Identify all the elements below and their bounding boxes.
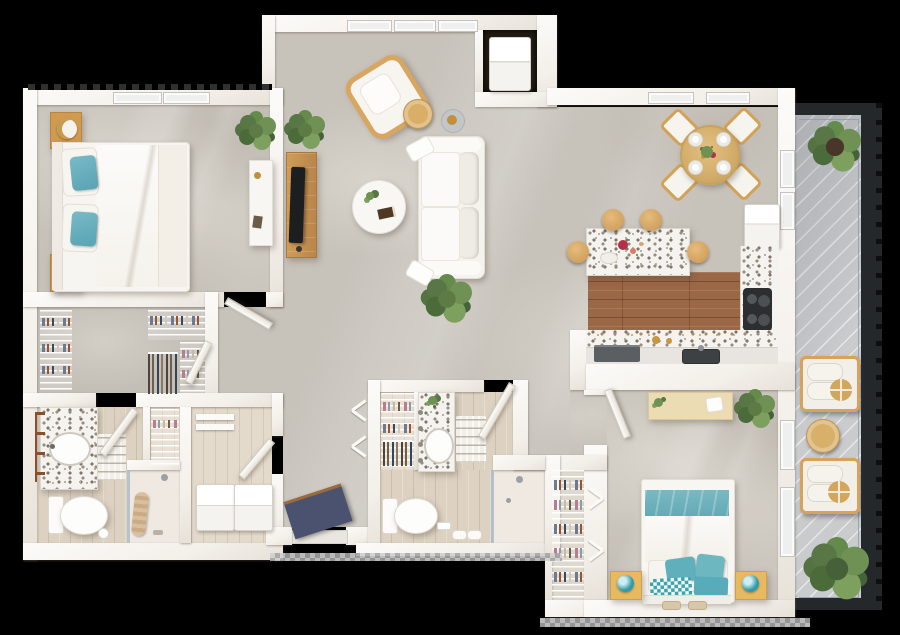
window: [780, 420, 795, 470]
lamp-teal: [617, 575, 634, 592]
balcony-plant: [826, 138, 844, 156]
wall: [136, 393, 283, 407]
coffee-table-plant: [366, 192, 374, 200]
wall: [23, 88, 37, 560]
window: [438, 20, 478, 32]
laundry-shelf: [196, 414, 234, 420]
shower-head: [516, 476, 523, 483]
island-flowers: [618, 240, 628, 250]
sofa-back-cushion: [458, 152, 479, 205]
place-setting: [688, 132, 703, 147]
toilet-paper: [98, 528, 109, 539]
laptop: [705, 396, 724, 413]
window: [648, 92, 694, 104]
desk-accessory: [252, 215, 263, 228]
folded-clothes: [383, 402, 412, 411]
towel-ladder: [35, 412, 45, 482]
kitchen-sink: [682, 349, 720, 364]
balcony-railing-posts: [876, 103, 882, 610]
bed-throw: [694, 576, 729, 596]
render-artifact-edge: [28, 84, 272, 90]
rolled-towel: [452, 530, 467, 540]
counter-jar: [666, 338, 672, 344]
faucet-knob: [418, 410, 423, 415]
plant: [298, 123, 312, 137]
sofa-seat-cushion: [421, 207, 460, 261]
dryer: [234, 484, 273, 531]
bifold-door: [586, 536, 604, 564]
wall: [475, 92, 557, 107]
corridor-floor: [570, 390, 584, 455]
wall: [180, 407, 191, 543]
folded-clothes: [554, 572, 582, 582]
shower-knob: [506, 498, 511, 503]
kitchen-faucet: [698, 345, 704, 351]
folded-clothes: [554, 500, 582, 510]
vanity-plant: [428, 396, 437, 405]
round-pillow: [830, 379, 852, 401]
window: [163, 92, 210, 104]
toilet-bowl: [394, 498, 438, 534]
counter-jar: [652, 336, 660, 344]
shower-glass: [491, 470, 494, 543]
window: [394, 20, 436, 32]
faucet-knob: [418, 442, 423, 447]
sofa-back-cushion: [458, 207, 479, 259]
desk-plant: [654, 398, 663, 407]
faucet-knob: [418, 458, 423, 463]
place-setting: [716, 160, 731, 175]
desk: [249, 160, 273, 246]
water-heater: [489, 37, 531, 91]
render-artifact-edge: [540, 618, 810, 627]
sofa-seat-cushion: [421, 152, 460, 207]
hanging-clothes: [148, 352, 178, 394]
place-setting: [688, 160, 703, 175]
pillow-teal: [69, 155, 98, 192]
lamp-teal: [742, 575, 759, 592]
window: [706, 92, 750, 104]
headboard: [643, 595, 731, 604]
kitchen-floor: [588, 272, 740, 332]
folded-clothes: [42, 344, 70, 352]
wall: [23, 393, 96, 407]
plant: [748, 402, 762, 416]
plant: [438, 290, 456, 308]
desk-accessory: [254, 172, 261, 179]
window: [780, 487, 795, 557]
centerpiece: [701, 146, 713, 158]
blanket: [158, 145, 187, 287]
closet-shelves: [148, 310, 205, 340]
candle: [447, 115, 457, 125]
wall: [266, 292, 283, 307]
soap-dish: [437, 522, 451, 530]
hanging-clothes: [383, 440, 412, 466]
bar-stool: [602, 209, 624, 231]
console-bowl: [296, 246, 302, 252]
wall: [262, 15, 275, 95]
bath-mat: [456, 416, 486, 462]
bed-teal-blanket: [645, 490, 729, 516]
bifold-door: [586, 484, 604, 512]
wall: [272, 393, 283, 436]
balcony-railing-bottom: [795, 598, 882, 610]
wall: [586, 363, 795, 390]
round-pillow: [828, 481, 850, 503]
side-table: [403, 99, 433, 129]
bar-stool: [640, 209, 662, 231]
kitchen-island: [586, 228, 690, 276]
wall: [475, 30, 483, 92]
dishwasher: [594, 345, 640, 362]
folded-clothes: [383, 424, 412, 433]
cooktop: [743, 288, 772, 331]
faucet-knob: [418, 426, 423, 431]
folded-clothes: [42, 318, 70, 326]
shower-drain: [153, 530, 163, 535]
window: [347, 20, 392, 32]
folded-clothes: [150, 316, 200, 325]
wall: [493, 455, 545, 470]
tv: [289, 167, 306, 243]
outdoor-chair: [800, 356, 860, 412]
wall: [143, 407, 150, 467]
linens: [153, 420, 177, 428]
slipper: [662, 601, 681, 610]
shower-glass: [127, 470, 130, 543]
wall: [368, 380, 380, 556]
wall: [368, 380, 484, 392]
faucet: [50, 444, 55, 449]
refrigerator: [744, 204, 780, 248]
pillow-teal: [70, 211, 98, 247]
wall: [23, 543, 283, 560]
folded-clothes: [42, 366, 70, 374]
wall: [570, 330, 586, 390]
folded-clothes: [554, 480, 582, 490]
lamp: [57, 119, 77, 139]
outdoor-table: [806, 419, 840, 453]
plant: [249, 124, 263, 138]
folded-clothes: [554, 524, 582, 534]
bifold-door: [351, 432, 369, 460]
bar-stool: [687, 241, 709, 263]
vanity-sink: [424, 428, 454, 464]
bifold-door: [351, 396, 369, 424]
render-artifact-edge: [270, 553, 562, 561]
washer: [196, 484, 235, 531]
slipper: [688, 601, 707, 610]
bedroom-2-door-floor: [584, 395, 607, 445]
window: [780, 150, 795, 188]
place-setting: [716, 132, 731, 147]
floor-plan: [0, 0, 900, 635]
linen-shelves: [151, 409, 179, 466]
shower-head: [161, 474, 168, 481]
island-plate: [600, 252, 618, 264]
outdoor-chair: [800, 458, 860, 514]
laundry-shelf: [196, 424, 234, 430]
window: [780, 192, 795, 230]
vanity-sink: [49, 432, 91, 466]
rolled-towel: [467, 530, 482, 540]
coffee-table: [352, 180, 406, 234]
chair-cushion: [357, 71, 404, 118]
bar-stool: [567, 241, 589, 263]
wall: [23, 292, 224, 307]
balcony-palm: [826, 558, 848, 580]
window: [113, 92, 162, 104]
